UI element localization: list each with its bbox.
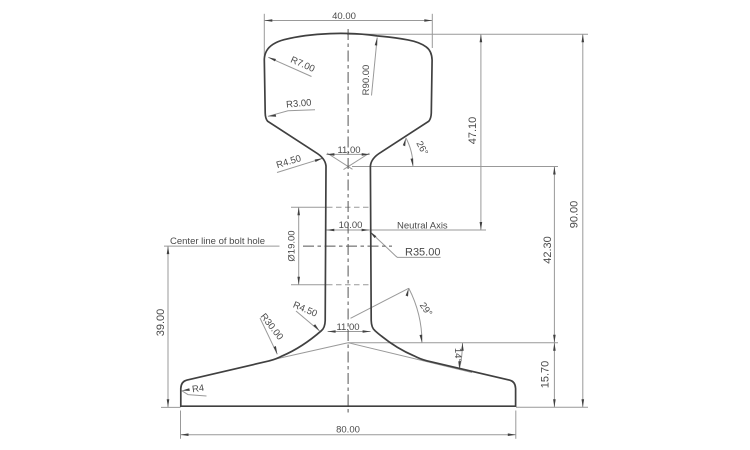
- svg-text:47.10: 47.10: [467, 117, 479, 145]
- svg-text:15.70: 15.70: [540, 361, 552, 389]
- svg-text:R90.00: R90.00: [361, 65, 372, 96]
- svg-text:10.00: 10.00: [339, 220, 363, 231]
- svg-text:R3.00: R3.00: [286, 97, 312, 110]
- svg-text:Center line of bolt hole: Center line of bolt hole: [170, 236, 265, 247]
- svg-text:42.30: 42.30: [542, 236, 554, 264]
- svg-text:R35.00: R35.00: [405, 247, 440, 259]
- svg-text:90.00: 90.00: [569, 201, 581, 229]
- svg-text:14°: 14°: [452, 348, 463, 363]
- svg-text:Neutral Axis: Neutral Axis: [397, 221, 448, 232]
- svg-text:11.00: 11.00: [337, 145, 360, 156]
- svg-text:Ø19.00: Ø19.00: [287, 230, 298, 261]
- svg-text:R4: R4: [191, 383, 205, 396]
- svg-text:39.00: 39.00: [155, 309, 167, 337]
- svg-text:11.00: 11.00: [336, 322, 359, 333]
- svg-text:80.00: 80.00: [336, 425, 360, 436]
- svg-text:40.00: 40.00: [332, 11, 356, 22]
